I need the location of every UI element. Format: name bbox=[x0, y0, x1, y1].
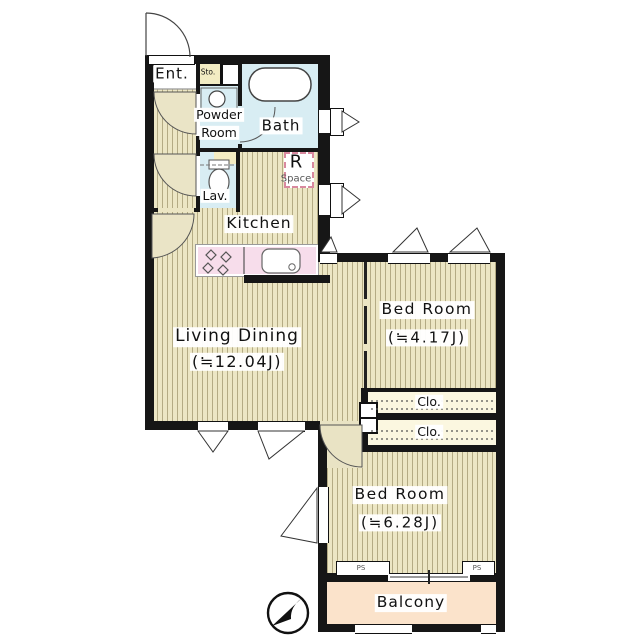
bedroom2-window bbox=[318, 487, 329, 543]
sliding-partition bbox=[364, 262, 367, 388]
size-bedroom-2: (≒6.28J) bbox=[359, 514, 441, 531]
label-closet-1: Clo. bbox=[415, 395, 443, 409]
closet-pillar bbox=[359, 417, 378, 434]
label-entrance: Ent. bbox=[153, 65, 191, 82]
balcony-rail-gap bbox=[481, 624, 496, 634]
label-kitchen: Kitchen bbox=[224, 215, 293, 233]
outside-mask bbox=[330, 55, 366, 253]
label-living-dining: Living Dining bbox=[173, 327, 301, 347]
bedroom1-window-small bbox=[320, 253, 337, 264]
lavatory-shelf bbox=[214, 152, 236, 164]
label-bath: Bath bbox=[260, 117, 303, 134]
balcony-rail-gap bbox=[355, 624, 412, 634]
entrance-door-swing bbox=[146, 13, 190, 57]
bedroom1-window-a bbox=[388, 253, 430, 264]
label-bedroom-1: Bed Room bbox=[379, 301, 474, 319]
north-arrow-icon bbox=[268, 593, 308, 633]
label-powder-1: Powder bbox=[194, 108, 244, 122]
living-window-a bbox=[198, 421, 228, 432]
size-living-dining: (≒12.04J) bbox=[190, 353, 284, 371]
kitchen-counter bbox=[196, 245, 318, 276]
size-bedroom-1: (≒4.17J) bbox=[386, 329, 468, 346]
label-balcony: Balcony bbox=[375, 594, 447, 612]
label-powder-2: Room bbox=[199, 126, 239, 140]
label-ps-2: PS bbox=[471, 564, 484, 572]
label-storage: Sto. bbox=[199, 69, 218, 78]
living-window-b bbox=[258, 421, 305, 432]
label-closet-2: Clo. bbox=[415, 425, 443, 439]
label-ps-1: PS bbox=[355, 564, 368, 572]
floor-plan: Ent. Sto. Powder Room Bath Lav. R Space … bbox=[0, 0, 640, 640]
label-r-space-2: Space bbox=[279, 173, 313, 185]
floor-bedroom-1 bbox=[365, 262, 496, 392]
label-bedroom-2: Bed Room bbox=[352, 486, 447, 504]
label-lavatory: Lav. bbox=[200, 189, 229, 203]
label-r-space-1: R bbox=[288, 153, 305, 174]
room-bath bbox=[242, 64, 321, 148]
bedroom1-window-b bbox=[448, 253, 490, 264]
